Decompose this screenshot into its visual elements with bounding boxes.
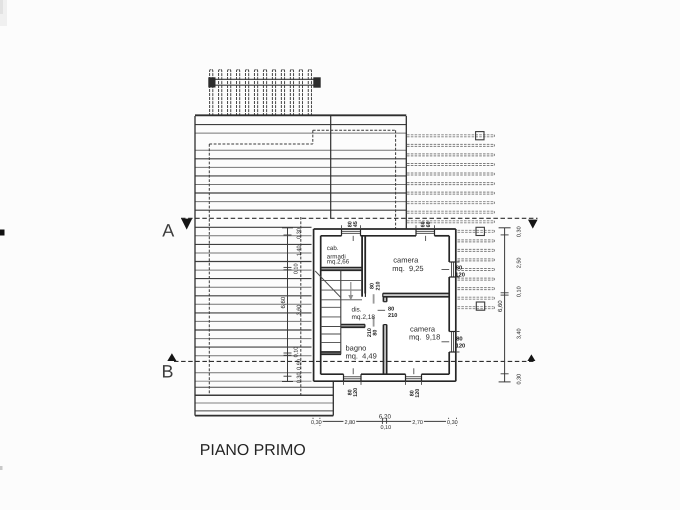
- svg-text:B: B: [162, 362, 174, 382]
- svg-text:0,10: 0,10: [294, 263, 300, 274]
- svg-text:120: 120: [455, 271, 465, 278]
- svg-text:mq. 9,18: mq. 9,18: [409, 333, 440, 342]
- svg-text:dis.: dis.: [352, 307, 362, 314]
- svg-text:3,60: 3,60: [297, 305, 303, 316]
- svg-text:80: 80: [388, 307, 394, 313]
- svg-text:mq. 4,49: mq. 4,49: [346, 352, 377, 361]
- svg-text:mq.2,66: mq.2,66: [327, 258, 350, 265]
- svg-text:60: 60: [426, 221, 432, 227]
- svg-text:PIANO PRIMO: PIANO PRIMO: [200, 442, 306, 459]
- svg-text:120: 120: [353, 388, 359, 397]
- svg-text:120: 120: [415, 389, 421, 398]
- svg-text:6,60: 6,60: [497, 300, 504, 312]
- svg-text:80: 80: [372, 330, 378, 336]
- svg-text:80: 80: [456, 264, 462, 271]
- svg-text:0,30: 0,30: [297, 228, 303, 239]
- svg-text:0,30: 0,30: [447, 420, 458, 426]
- svg-text:0,30: 0,30: [517, 374, 523, 385]
- svg-text:210: 210: [375, 282, 381, 291]
- svg-text:45: 45: [353, 221, 359, 227]
- svg-text:mq. 9,25: mq. 9,25: [392, 264, 423, 273]
- svg-text:80: 80: [456, 335, 462, 342]
- svg-text:A: A: [162, 221, 174, 241]
- svg-text:2,70: 2,70: [412, 420, 423, 426]
- svg-text:0,10: 0,10: [380, 425, 391, 431]
- svg-text:0,10: 0,10: [517, 286, 523, 297]
- svg-text:3,40: 3,40: [517, 328, 523, 339]
- svg-text:0,30: 0,30: [297, 372, 303, 383]
- svg-text:210: 210: [388, 313, 397, 319]
- svg-text:0,10: 0,10: [294, 347, 300, 358]
- svg-text:6,20: 6,20: [379, 413, 392, 420]
- svg-text:0,30: 0,30: [311, 420, 322, 426]
- svg-text:cab.: cab.: [327, 245, 339, 252]
- svg-text:1,40: 1,40: [297, 245, 303, 256]
- svg-text:6,60: 6,60: [280, 296, 287, 308]
- svg-text:0,90: 0,90: [297, 359, 303, 370]
- svg-text:2,50: 2,50: [517, 258, 523, 269]
- svg-text:mq.2,18: mq.2,18: [352, 314, 376, 321]
- svg-text:120: 120: [456, 343, 466, 350]
- svg-text:2,80: 2,80: [345, 420, 356, 426]
- svg-text:0,30: 0,30: [517, 226, 523, 237]
